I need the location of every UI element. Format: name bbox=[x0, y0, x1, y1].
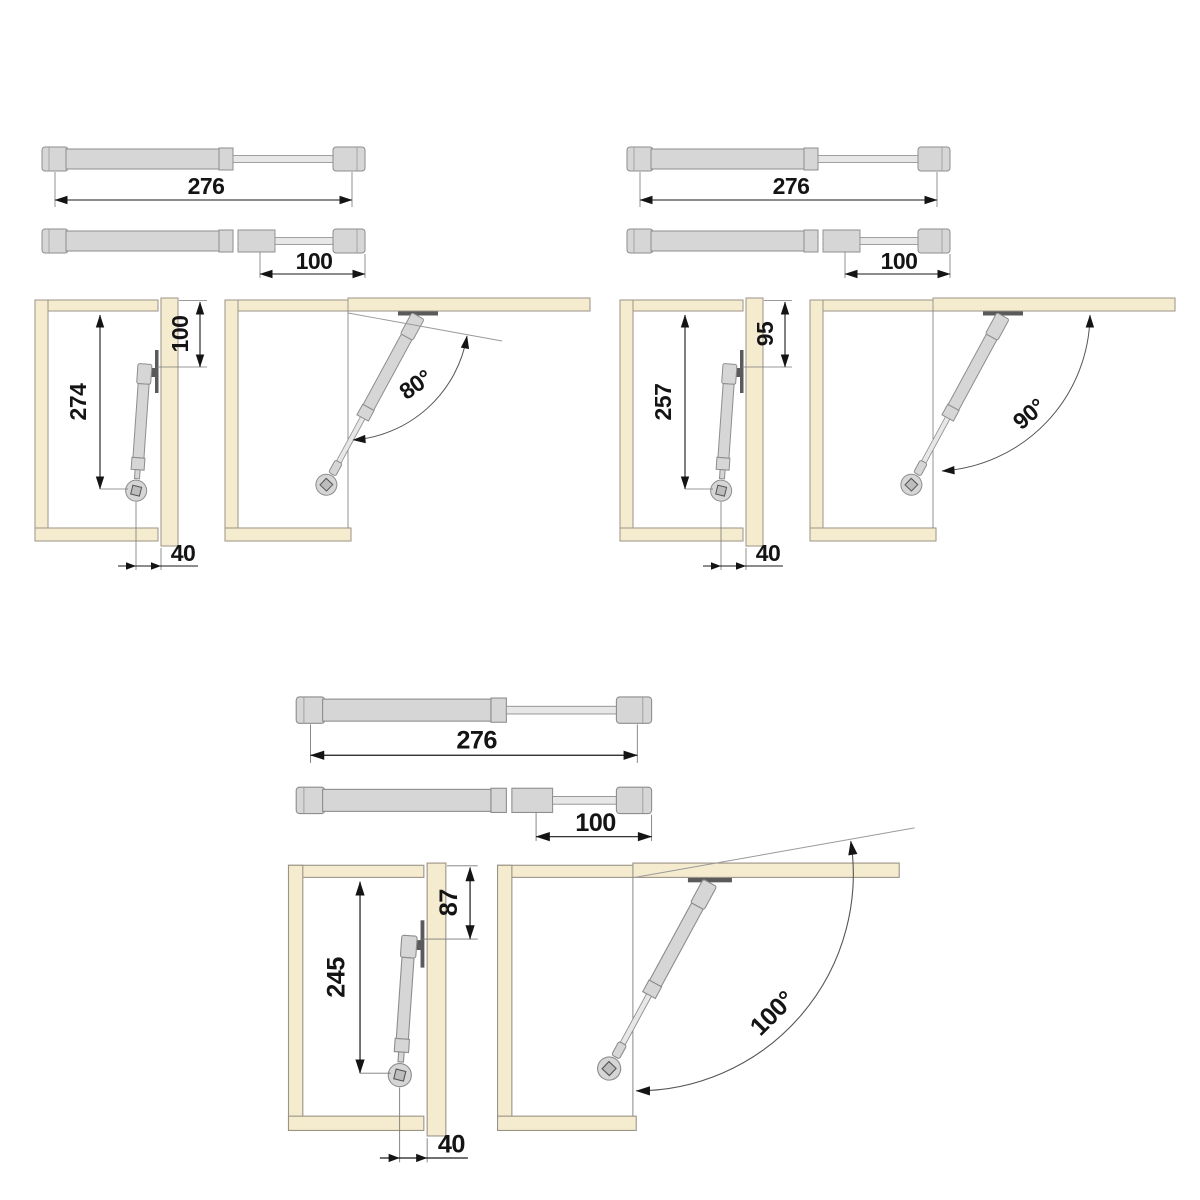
figure-100-degree: 276 100 245 87 bbox=[283, 676, 919, 1180]
cabinet-open-drawing: 80° bbox=[225, 298, 590, 541]
dim-top-mount-offset: 95 bbox=[752, 321, 778, 346]
diagram-sheet: 276 100 274 100 bbox=[0, 0, 1200, 1200]
dim-installed-length: 245 bbox=[323, 957, 351, 998]
dim-extended-length: 276 bbox=[188, 173, 225, 199]
dim-front-mount-offset: 40 bbox=[171, 540, 196, 566]
dim-rod-stroke: 100 bbox=[575, 809, 616, 837]
strut-extended-drawing: 276 bbox=[42, 147, 365, 207]
cabinet-open-drawing: 100° bbox=[498, 828, 915, 1131]
strut-extended-drawing: 276 bbox=[296, 697, 651, 763]
strut-extended-drawing: 276 bbox=[627, 147, 950, 207]
cabinet-closed-drawing: 257 95 40 bbox=[620, 298, 792, 570]
dim-extended-length: 276 bbox=[456, 727, 497, 755]
dim-top-mount-offset: 100 bbox=[167, 316, 193, 353]
dim-installed-length: 274 bbox=[65, 383, 91, 421]
opening-angle-label: 80° bbox=[394, 364, 436, 405]
strut-compressed-drawing: 100 bbox=[627, 229, 950, 278]
dim-rod-stroke: 100 bbox=[296, 248, 333, 274]
dim-front-mount-offset: 40 bbox=[756, 540, 781, 566]
dim-installed-length: 257 bbox=[650, 384, 676, 421]
cabinet-open-drawing: 90° bbox=[810, 298, 1175, 541]
dim-rod-stroke: 100 bbox=[881, 248, 918, 274]
figure-80-degree: 276 100 274 100 bbox=[30, 128, 608, 586]
opening-angle-label: 100° bbox=[745, 986, 801, 1042]
dim-front-mount-offset: 40 bbox=[438, 1130, 466, 1158]
door-angle-reference-line bbox=[348, 313, 502, 341]
figure-90-degree: 276 100 257 95 bbox=[615, 128, 1193, 586]
dim-top-mount-offset: 87 bbox=[435, 889, 463, 916]
strut-compressed-drawing: 100 bbox=[296, 787, 651, 841]
dim-extended-length: 276 bbox=[773, 173, 810, 199]
opening-angle-label: 90° bbox=[1008, 393, 1050, 435]
strut-compressed-drawing: 100 bbox=[42, 229, 365, 278]
cabinet-closed-drawing: 245 87 40 bbox=[289, 863, 478, 1162]
cabinet-closed-drawing: 274 100 40 bbox=[35, 298, 207, 570]
